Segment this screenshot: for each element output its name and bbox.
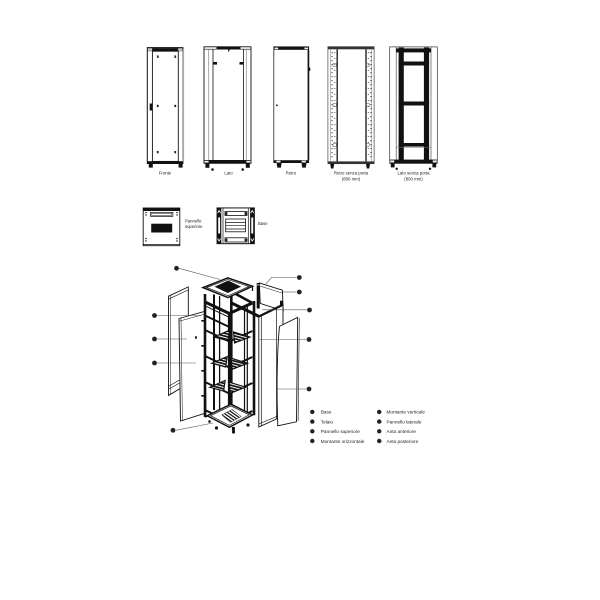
svg-text:Lato: Lato	[224, 171, 233, 176]
svg-text:Base: Base	[258, 221, 268, 226]
svg-text:Pannello: Pannello	[185, 219, 202, 224]
svg-text:(800 mm): (800 mm)	[342, 176, 361, 181]
svg-text:Retro senza porta: Retro senza porta	[334, 171, 369, 176]
svg-text:Lato senza porta: Lato senza porta	[397, 171, 430, 176]
svg-text:Pannello superiore: Pannello superiore	[321, 429, 360, 434]
svg-text:Retro: Retro	[286, 171, 297, 176]
svg-text:Montante verticale: Montante verticale	[387, 410, 426, 415]
svg-text:superiore: superiore	[185, 224, 203, 229]
svg-text:Anta anteriore: Anta anteriore	[387, 429, 417, 434]
svg-text:(800 mm): (800 mm)	[404, 176, 423, 181]
svg-text:Base: Base	[321, 410, 332, 415]
svg-text:Telaio: Telaio	[321, 419, 334, 424]
svg-text:7: 7	[380, 430, 382, 434]
svg-text:Fronte: Fronte	[159, 171, 172, 176]
svg-text:5: 5	[380, 410, 382, 414]
svg-text:8: 8	[380, 439, 382, 443]
svg-text:Anta posteriore: Anta posteriore	[387, 439, 419, 444]
svg-text:Montante orizzontale: Montante orizzontale	[321, 439, 365, 444]
svg-text:Pannello laterale: Pannello laterale	[387, 419, 422, 424]
svg-text:6: 6	[380, 420, 382, 424]
